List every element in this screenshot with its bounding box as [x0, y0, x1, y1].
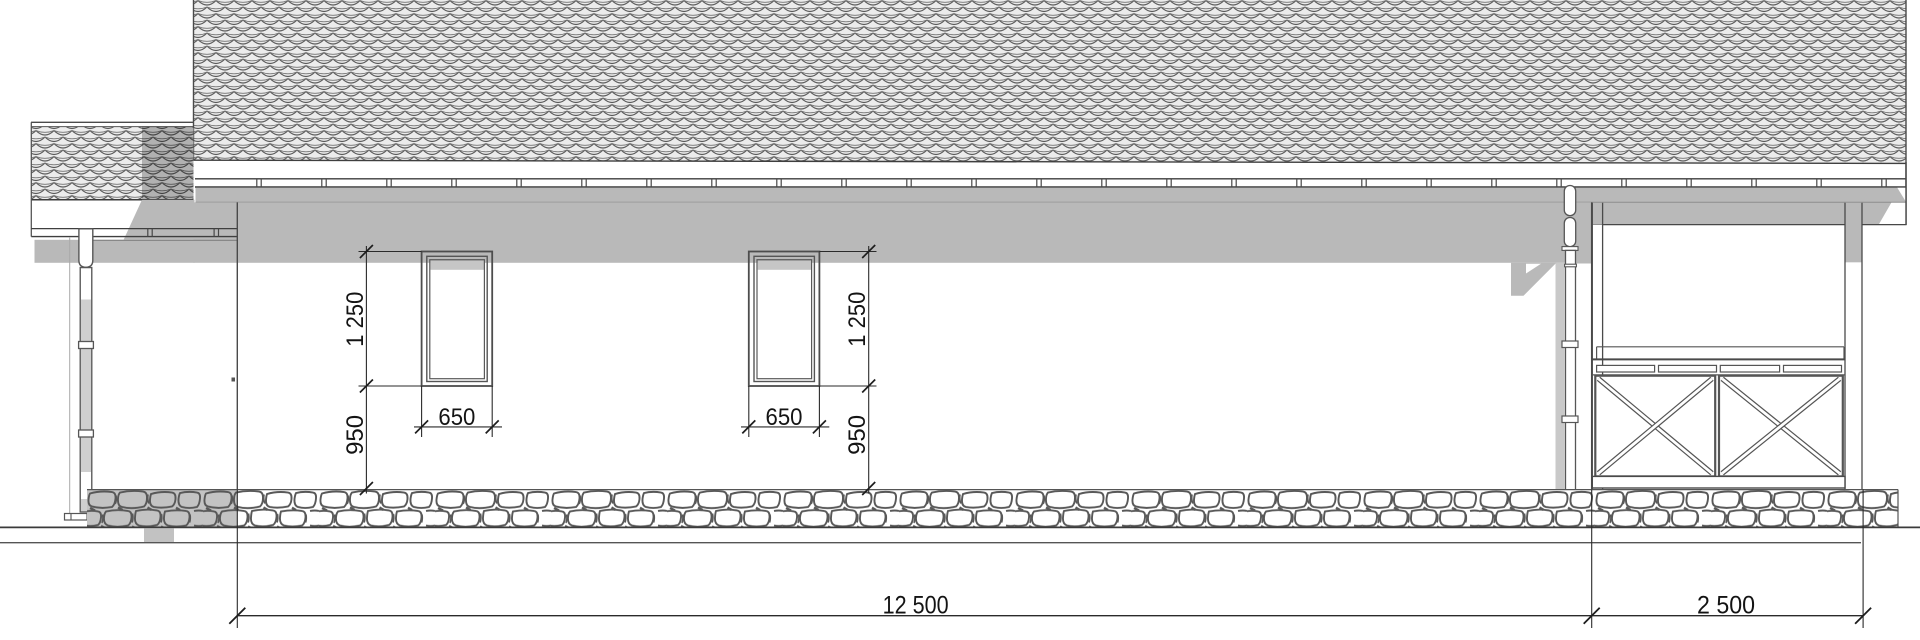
- svg-text:650: 650: [766, 404, 803, 431]
- svg-text:650: 650: [438, 404, 475, 431]
- svg-text:12 500: 12 500: [883, 592, 949, 620]
- svg-text:950: 950: [844, 415, 871, 455]
- svg-text:1 250: 1 250: [342, 292, 369, 347]
- svg-text:1 250: 1 250: [844, 292, 871, 347]
- svg-text:2 500: 2 500: [1697, 592, 1755, 620]
- svg-text:950: 950: [342, 415, 369, 455]
